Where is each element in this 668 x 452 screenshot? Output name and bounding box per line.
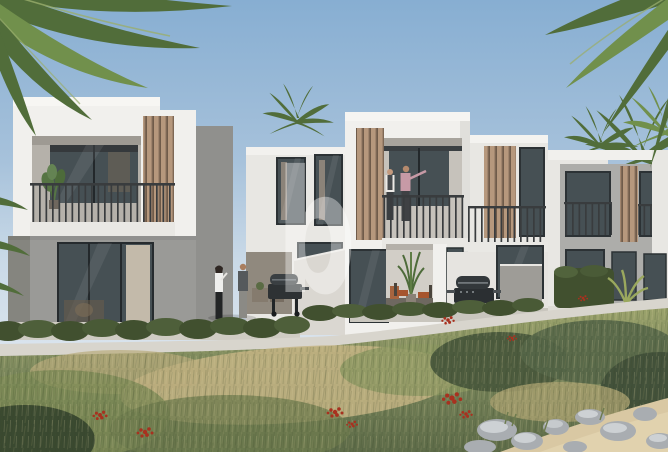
box-hedge xyxy=(554,265,614,308)
wood-slat-screen xyxy=(620,166,638,242)
property-render-photo: b xyxy=(0,0,668,452)
balcony-railing xyxy=(468,206,546,242)
villa-left xyxy=(8,97,233,335)
wood-slat-screen xyxy=(356,128,384,240)
watermark-letter: b xyxy=(276,134,356,332)
patio-chair xyxy=(396,290,408,296)
curtain xyxy=(126,245,150,323)
man-dark-tee xyxy=(238,264,248,318)
ground-patio xyxy=(386,244,433,312)
villa-left-side-wall xyxy=(196,126,233,335)
render-scene: b xyxy=(0,0,668,452)
balcony-railing xyxy=(382,195,464,239)
ground-window xyxy=(644,254,666,300)
upper-window xyxy=(564,172,612,236)
balcony-railing xyxy=(30,183,175,224)
sliding-glass-door xyxy=(58,243,153,325)
patio-chair xyxy=(418,292,430,298)
